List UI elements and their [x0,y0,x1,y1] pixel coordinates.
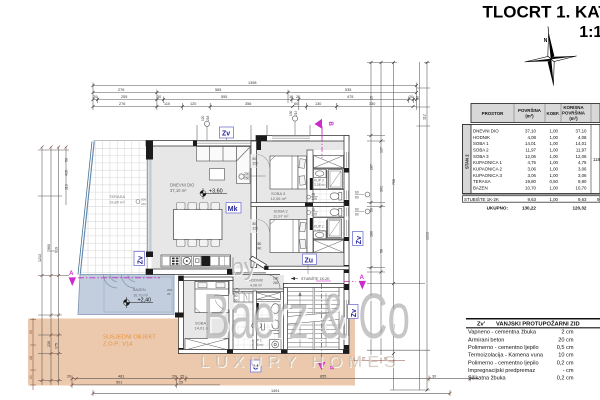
svg-text:KOEF.: KOEF. [547,111,560,116]
svg-text:415: 415 [65,170,69,176]
svg-text:1,00: 1,00 [549,173,558,178]
svg-text:20 cm: 20 cm [558,337,574,343]
svg-text:3,06: 3,06 [527,167,536,172]
svg-text:Polimerno - cementno ljepilo: Polimerno - cementno ljepilo [468,345,539,351]
svg-text:Z.O.P.: V14: Z.O.P.: V14 [103,342,133,348]
svg-text:SUSJEDNI OBJEKT: SUSJEDNI OBJEKT [103,335,156,341]
svg-text:960: 960 [47,244,51,250]
svg-text:B: B [327,122,333,127]
svg-text:25: 25 [180,375,184,379]
svg-text:1213: 1213 [426,232,430,240]
svg-text:535: 535 [345,88,351,92]
svg-text:PROSTOR: PROSTOR [482,111,504,116]
svg-text:10,70: 10,70 [525,186,537,191]
svg-text:1,00: 1,00 [549,186,558,191]
svg-text:10 cm: 10 cm [558,353,574,359]
svg-text:37,10: 37,10 [576,128,588,133]
svg-text:Silikatna žbuka: Silikatna žbuka [468,376,507,382]
svg-text:755: 755 [392,179,396,185]
svg-text:229: 229 [312,212,318,216]
svg-text:30: 30 [157,95,161,99]
svg-text:11,97: 11,97 [576,147,587,152]
svg-text:3,06: 3,06 [527,173,536,178]
svg-text:330: 330 [369,102,375,106]
svg-text:37,10 m²: 37,10 m² [170,188,187,193]
svg-text:Zu: Zu [305,257,314,264]
svg-text:130: 130 [289,110,293,116]
svg-text:STUBIŠTE 1K-2K: STUBIŠTE 1K-2K [464,197,499,202]
svg-text:110: 110 [164,102,170,106]
svg-text:15: 15 [370,96,374,100]
svg-text:60: 60 [355,195,359,199]
svg-text:by: by [231,254,256,281]
svg-text:SOBA 2: SOBA 2 [473,147,489,152]
svg-text:KUPAONICA 2: KUPAONICA 2 [473,167,503,172]
svg-text:1,00: 1,00 [549,128,558,133]
svg-text:30: 30 [432,375,436,379]
svg-text:25: 25 [29,330,33,334]
svg-text:SOBA 3: SOBA 3 [473,154,489,159]
svg-text:3,06 m²: 3,06 m² [314,183,326,187]
svg-text:919: 919 [55,247,59,253]
svg-text:229: 229 [312,197,318,201]
svg-text:240: 240 [141,202,146,206]
svg-text:280: 280 [256,242,262,246]
svg-text:Zv: Zv [222,131,230,138]
svg-text:BAZEN: BAZEN [473,186,488,191]
svg-text:1:100: 1:100 [579,24,600,41]
svg-text:1,00: 1,00 [549,135,558,140]
svg-text:KUP 3: KUP 3 [314,179,324,183]
svg-text:Termoizolacija - Kamena vuna: Termoizolacija - Kamena vuna [468,353,544,359]
svg-text:25: 25 [179,381,183,385]
svg-text:STAN 2: STAN 2 [464,154,469,169]
svg-text:(m²): (m²) [525,114,534,119]
svg-text:28: 28 [167,292,171,296]
svg-text:130,22: 130,22 [522,205,536,210]
svg-text:12,06: 12,06 [576,154,588,159]
svg-text:Impregnacijski predpremaz: Impregnacijski predpremaz [468,368,535,374]
svg-text:N: N [544,38,548,44]
svg-text:28: 28 [29,356,33,360]
svg-text:+3,60: +3,60 [209,189,223,195]
svg-text:1,00: 1,00 [549,160,558,165]
svg-text:POVRŠINA: POVRŠINA [562,111,586,116]
svg-text:10,70: 10,70 [576,186,588,191]
svg-text:276: 276 [119,102,125,106]
svg-text:9,63: 9,63 [527,197,536,202]
svg-text:565: 565 [215,88,221,92]
svg-text:TERASA: TERASA [473,179,491,184]
svg-text:1,00: 1,00 [549,147,558,152]
svg-text:BAZEN: BAZEN [133,288,146,292]
svg-text:UKUPNO:: UKUPNO: [487,205,509,210]
svg-text:KORISNA: KORISNA [563,105,584,110]
svg-text:Zv': Zv' [477,322,486,328]
svg-text:260: 260 [244,177,250,181]
svg-text:220: 220 [253,227,259,231]
svg-text:118: 118 [593,157,600,162]
svg-text:20: 20 [416,96,420,100]
svg-text:1213: 1213 [38,254,42,262]
svg-text:POVRŠINA: POVRŠINA [518,108,542,113]
svg-text:500: 500 [141,198,146,202]
svg-text:Zv: Zv [138,256,145,264]
svg-text:175: 175 [55,343,59,349]
svg-text:20: 20 [172,375,176,379]
svg-text:1,00: 1,00 [549,197,558,202]
svg-text:130: 130 [315,102,321,106]
svg-text:Zv: Zv [356,236,363,244]
svg-text:DNEVNI DIO: DNEVNI DIO [473,128,499,133]
svg-text:80: 80 [253,222,257,226]
svg-text:80: 80 [253,157,257,161]
svg-text:Baerz & Co: Baerz & Co [203,280,410,352]
svg-text:301: 301 [380,186,384,192]
svg-text:2 cm: 2 cm [561,330,573,336]
svg-text:20: 20 [67,375,71,379]
svg-text:- cm: - cm [563,368,574,374]
svg-text:SOBA 1: SOBA 1 [473,141,489,146]
svg-text:TLOCRT 1. KAT: TLOCRT 1. KAT [483,2,600,21]
svg-text:219: 219 [294,110,298,116]
svg-text:37,10: 37,10 [525,128,537,133]
svg-text:60: 60 [355,207,359,211]
svg-text:276: 276 [118,88,124,92]
svg-text:180: 180 [370,231,374,237]
svg-text:240: 240 [256,247,262,251]
svg-text:112: 112 [423,114,427,120]
svg-text:A: A [69,270,74,277]
svg-text:0,50: 0,50 [549,179,558,184]
svg-text:12,06 m²: 12,06 m² [271,196,287,201]
svg-text:1,00: 1,00 [549,141,558,146]
svg-text:1,00: 1,00 [549,167,558,172]
svg-text:14,01: 14,01 [576,141,588,146]
svg-text:120: 120 [201,115,205,121]
svg-text:19,80 m²: 19,80 m² [109,200,125,205]
svg-text:1491: 1491 [271,389,279,393]
svg-text:137: 137 [380,147,384,153]
svg-text:3,06: 3,06 [578,167,587,172]
svg-text:9,90: 9,90 [578,179,587,184]
svg-text:10: 10 [289,95,293,99]
svg-text:4,08: 4,08 [578,135,587,140]
svg-text:287: 287 [370,164,374,170]
svg-text:20: 20 [93,95,97,99]
svg-text:60: 60 [355,212,359,216]
svg-text:481: 481 [118,375,124,379]
svg-text:120,32: 120,32 [572,205,586,210]
svg-text:Vapneno - cementna žbuka: Vapneno - cementna žbuka [468,330,537,336]
svg-text:11,97 m²: 11,97 m² [273,214,289,219]
svg-text:60: 60 [294,102,298,106]
svg-text:50: 50 [65,158,69,162]
svg-text:255: 255 [121,95,127,99]
svg-text:220: 220 [253,162,259,166]
svg-text:0,2 cm: 0,2 cm [557,360,574,366]
svg-text:(m²): (m²) [569,116,578,121]
svg-text:855: 855 [320,375,326,379]
svg-text:19,80: 19,80 [525,179,537,184]
svg-text:230: 230 [47,341,51,347]
svg-text:DNEVNI DIO: DNEVNI DIO [170,183,195,188]
svg-text:14,01: 14,01 [525,141,537,146]
svg-text:218: 218 [206,115,210,121]
svg-text:555: 555 [221,95,227,99]
svg-text:TERASA: TERASA [109,194,125,199]
svg-text:0,5 cm: 0,5 cm [557,345,574,351]
svg-text:1398: 1398 [248,81,256,85]
svg-text:20: 20 [409,95,413,99]
svg-text:3,06: 3,06 [578,173,587,178]
svg-text:4,75: 4,75 [527,160,536,165]
svg-text:Mk: Mk [228,206,238,213]
svg-text:356: 356 [245,102,251,106]
svg-text:4,08: 4,08 [527,135,536,140]
svg-text:Armirani beton: Armirani beton [468,337,504,343]
svg-text:Polimerno - cementno ljepilo: Polimerno - cementno ljepilo [468,360,539,366]
svg-text:20: 20 [296,95,300,99]
svg-text:20: 20 [29,375,33,379]
svg-text:4,75: 4,75 [578,160,587,165]
svg-text:LUXURY HOMES: LUXURY HOMES [200,354,401,371]
svg-text:0,2 cm: 0,2 cm [557,376,574,382]
svg-text:1,00: 1,00 [549,154,558,159]
svg-text:200: 200 [244,172,250,176]
svg-text:11,97: 11,97 [525,147,536,152]
svg-text:501: 501 [116,381,122,385]
svg-text:12,06: 12,06 [525,154,537,159]
svg-text:HODNIK: HODNIK [473,135,490,140]
svg-text:120: 120 [190,102,196,106]
svg-text:58: 58 [380,249,384,253]
svg-text:9,63: 9,63 [578,197,587,202]
svg-text:KUPAONICA 3: KUPAONICA 3 [473,173,503,178]
svg-text:475: 475 [347,95,353,99]
svg-text:60: 60 [355,190,359,194]
svg-text:VANJSKI PROTUPOŽARNI ZID: VANJSKI PROTUPOŽARNI ZID [496,320,580,328]
svg-text:113: 113 [65,184,69,190]
svg-text:KUPAONICA 1: KUPAONICA 1 [473,160,503,165]
